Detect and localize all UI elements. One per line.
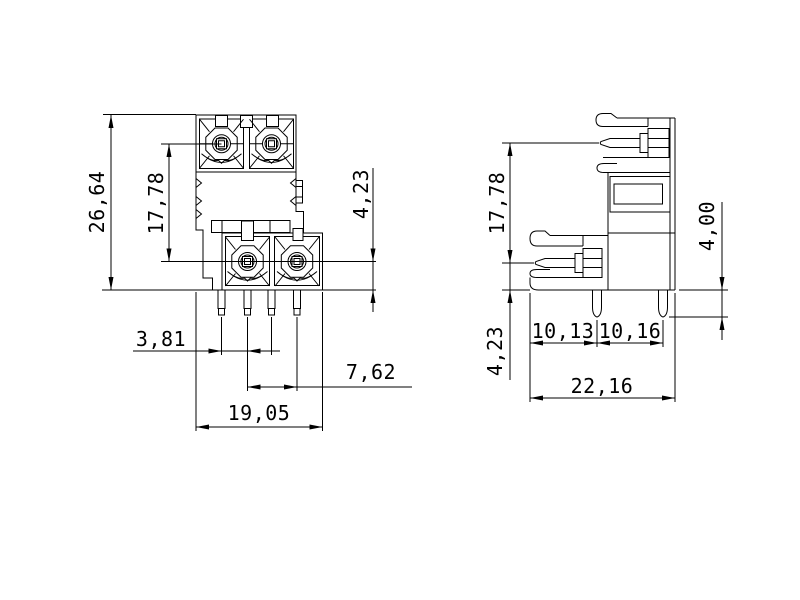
wire-tab <box>267 116 279 127</box>
solder-pins-front <box>218 290 301 315</box>
drawing-page: 26,64 17,78 4,23 3,81 7,62 19,05 <box>0 0 800 600</box>
wire-tab <box>216 116 228 127</box>
pin <box>294 290 301 309</box>
dim-label-pin-length: 4,00 <box>695 201 719 251</box>
pin-foot <box>219 309 225 316</box>
pin <box>593 290 602 317</box>
technical-drawing: 26,64 17,78 4,23 3,81 7,62 19,05 <box>0 0 800 600</box>
left-step-profile <box>196 172 213 290</box>
arrowheads-4-23 <box>508 290 513 303</box>
lower-clevis <box>583 249 602 278</box>
front-view: 26,64 17,78 4,23 3,81 7,62 19,05 <box>85 115 412 432</box>
pin-foot <box>269 309 275 316</box>
upper-clamp-screw <box>600 139 640 148</box>
dim-label-pin-to-pin: 10,16 <box>599 319 662 343</box>
lower-wire-entry <box>530 231 675 290</box>
upper-finger <box>596 114 648 127</box>
upper-screw-flange <box>640 134 648 153</box>
wire-tab <box>242 221 254 241</box>
right-latch-tab <box>296 181 303 204</box>
dim-label-base-to-lower-screw: 4,23 <box>483 326 507 376</box>
right-edge-notches <box>291 179 297 206</box>
dim-label-pin-pitch: 7,62 <box>346 360 396 384</box>
lower-clamp-screw <box>535 259 575 268</box>
pin-foot <box>294 309 300 316</box>
dim-label-pin-row-offset: 3,81 <box>136 327 186 351</box>
pin <box>268 290 275 309</box>
mounting-recess-inner <box>614 184 663 204</box>
dim-label-edge-to-first-pin: 10,13 <box>532 319 595 343</box>
dim-label-overall-width: 19,05 <box>228 401 291 425</box>
side-body <box>596 114 675 291</box>
left-edge-notches <box>196 179 202 219</box>
dim-label-screw-row-spacing: 17,78 <box>144 172 168 235</box>
upper-lower-finger <box>597 164 670 173</box>
dim-label-screw-to-base: 4,23 <box>349 169 373 219</box>
solder-pins-side <box>593 290 668 317</box>
pin <box>659 290 668 317</box>
lower-finger <box>530 231 608 246</box>
wire-tab <box>293 229 303 241</box>
side-view: 17,78 4,23 4,00 10,13 10,16 22,16 <box>483 114 728 403</box>
pin-foot <box>245 309 251 316</box>
upper-clevis <box>648 129 669 158</box>
lower-screw-flange <box>575 254 583 273</box>
side-view-dimensions: 17,78 4,23 4,00 10,13 10,16 22,16 <box>483 143 728 402</box>
dim-label-overall-depth: 22,16 <box>571 374 634 398</box>
pin <box>218 290 225 309</box>
dim-label-overall-height: 26,64 <box>85 171 109 234</box>
pin <box>244 290 251 309</box>
dim-label-screw-row-spacing-side: 17,78 <box>485 172 509 235</box>
